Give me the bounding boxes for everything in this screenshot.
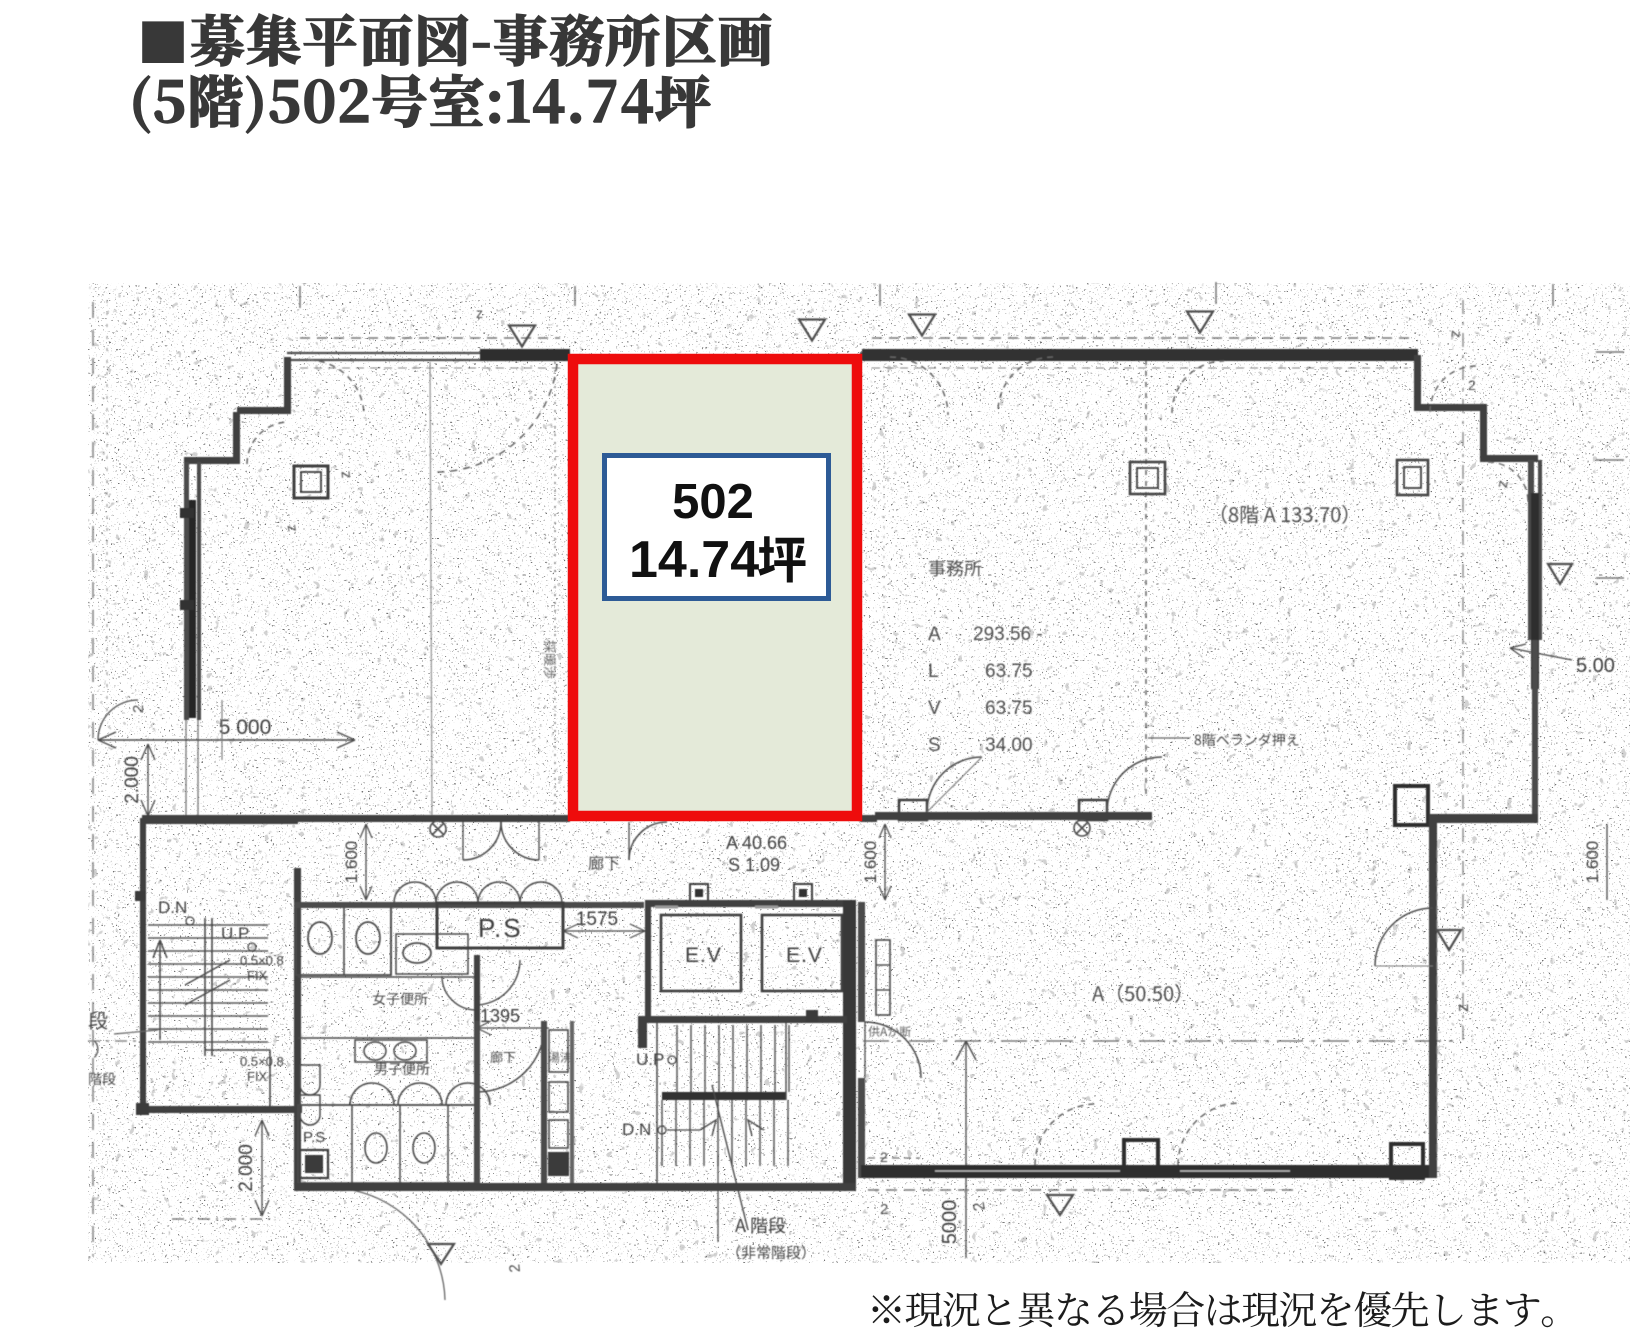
svg-text:1.600: 1.600: [861, 841, 880, 884]
svg-text:5000: 5000: [939, 1200, 961, 1245]
svg-text:E.V: E.V: [685, 944, 722, 967]
svg-text:FIX: FIX: [247, 1069, 268, 1084]
svg-text:2: 2: [880, 1149, 888, 1165]
svg-text:2: 2: [1468, 377, 1476, 393]
svg-text:U.P: U.P: [221, 924, 249, 943]
svg-text:S: S: [928, 735, 941, 756]
svg-text:D.N: D.N: [158, 898, 187, 917]
svg-text:P.S: P.S: [303, 1129, 325, 1146]
svg-text:502: 502: [672, 475, 754, 529]
svg-text:L: L: [928, 661, 939, 682]
svg-text:0.5×0.8: 0.5×0.8: [240, 1054, 284, 1069]
svg-text:2.000: 2.000: [236, 1144, 257, 1192]
svg-text:2: 2: [506, 1263, 524, 1273]
svg-text:293.56 -: 293.56 -: [973, 624, 1043, 645]
svg-text:1.600: 1.600: [342, 841, 361, 884]
svg-text:14.74: 14.74: [629, 531, 759, 589]
svg-text:P.S: P.S: [478, 913, 523, 943]
svg-text:34.00: 34.00: [985, 735, 1033, 756]
svg-text:2.000: 2.000: [122, 756, 143, 804]
svg-text:FIX: FIX: [247, 968, 268, 983]
svg-text:z: z: [1453, 1004, 1472, 1013]
svg-text:63.75: 63.75: [985, 661, 1033, 682]
svg-text:5.00: 5.00: [1576, 655, 1615, 677]
svg-text:D.N: D.N: [622, 1120, 651, 1139]
svg-text:1.600: 1.600: [1583, 841, 1602, 884]
svg-text:S 1.09: S 1.09: [728, 855, 780, 875]
svg-text:0.5×0.8: 0.5×0.8: [240, 953, 284, 968]
svg-text:U.P: U.P: [636, 1050, 664, 1069]
svg-text:1395: 1395: [480, 1006, 520, 1026]
svg-text:5 000: 5 000: [219, 716, 272, 739]
svg-text:E.V: E.V: [786, 944, 823, 967]
svg-text:z: z: [476, 305, 483, 321]
svg-text:2: 2: [880, 1201, 888, 1218]
svg-text:A: A: [928, 624, 941, 645]
svg-text:63.75: 63.75: [985, 698, 1033, 719]
svg-text:1575: 1575: [576, 909, 618, 930]
svg-text:z: z: [336, 470, 354, 479]
svg-text:z: z: [1447, 330, 1465, 339]
svg-text:V: V: [928, 698, 941, 719]
svg-text:A 40.66: A 40.66: [726, 833, 787, 853]
svg-text:2: 2: [130, 705, 147, 713]
